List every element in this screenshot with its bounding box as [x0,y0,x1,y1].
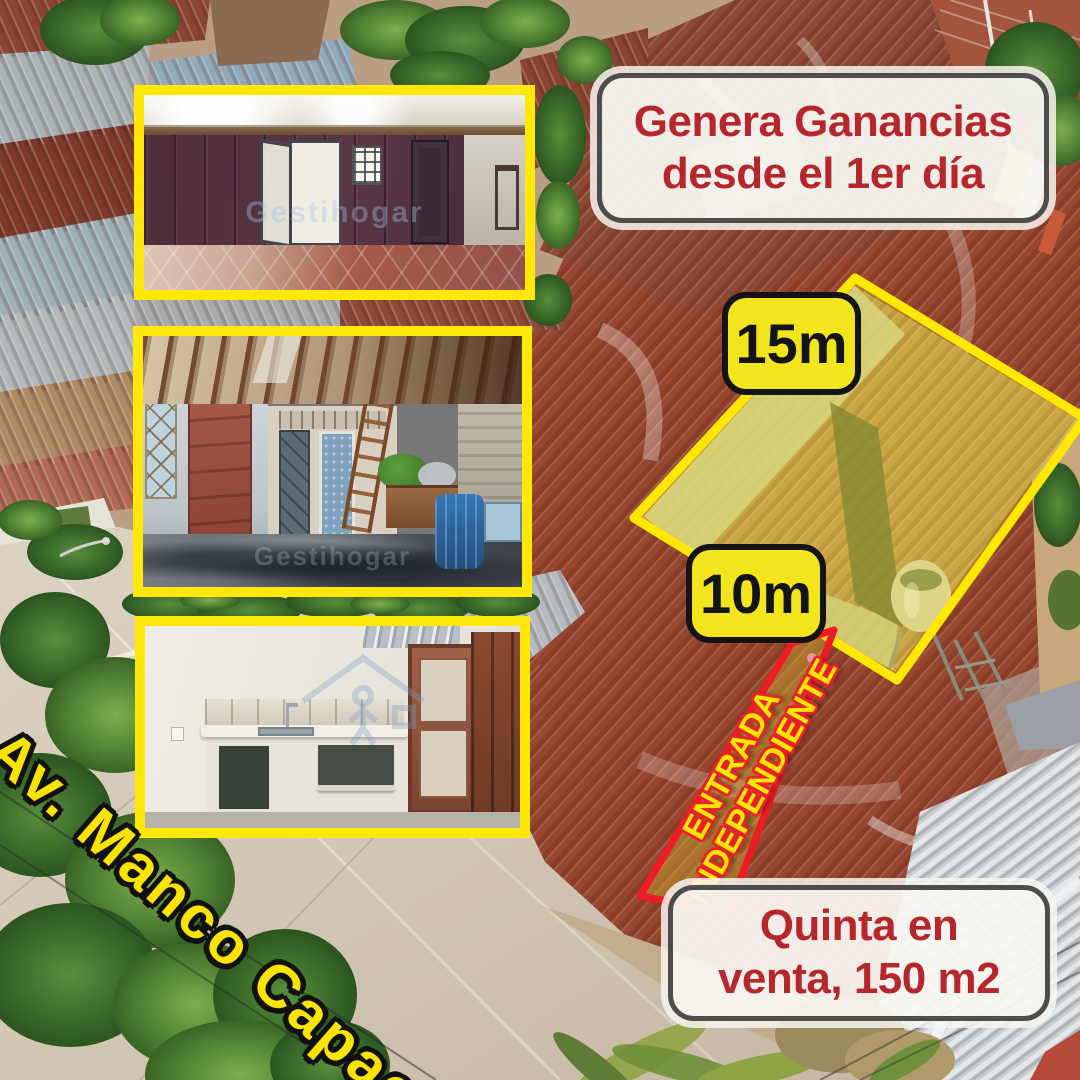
real-estate-ad: Gestihogar Gestihogar [0,0,1080,1080]
barred-window [352,146,382,185]
glass-door [260,139,292,247]
counter-opening [219,746,270,809]
watermark-house-icon [288,646,438,756]
depth-measurement-badge: 10m [686,544,826,643]
sale-line1: Quinta en [760,900,958,953]
frontage-measurement-badge: 15m [722,292,861,395]
counter-shelf [318,785,394,791]
light-switch [171,727,184,741]
inset-photo-corridor: Gestihogar [133,326,532,597]
red-wood-door [188,379,252,554]
concrete-floor [145,812,520,828]
inset-photo-wood-interior: Gestihogar [134,85,535,300]
inset-photo-kitchen [135,616,530,838]
photo-kitchen-scene [145,626,520,828]
exposed-roof-beams [143,336,522,404]
headline-line2: desde el 1er día [662,148,984,200]
ceiling [144,95,525,128]
headline-box: Genera Ganancias desde el 1er día [597,73,1049,223]
sale-line2: venta, 150 m2 [718,953,1000,1006]
metal-sink [484,502,522,542]
photo-corridor-scene: Gestihogar [143,336,522,587]
tiled-floor [144,245,525,290]
sale-info-box: Quinta en venta, 150 m2 [668,885,1050,1021]
wood-plank-wall [471,632,520,818]
watermark-text: Gestihogar [143,541,522,572]
watermark-text: Gestihogar [144,196,525,230]
metal-door [279,430,309,543]
photo-interior-scene: Gestihogar [144,95,525,290]
headline-line1: Genera Ganancias [634,96,1012,148]
